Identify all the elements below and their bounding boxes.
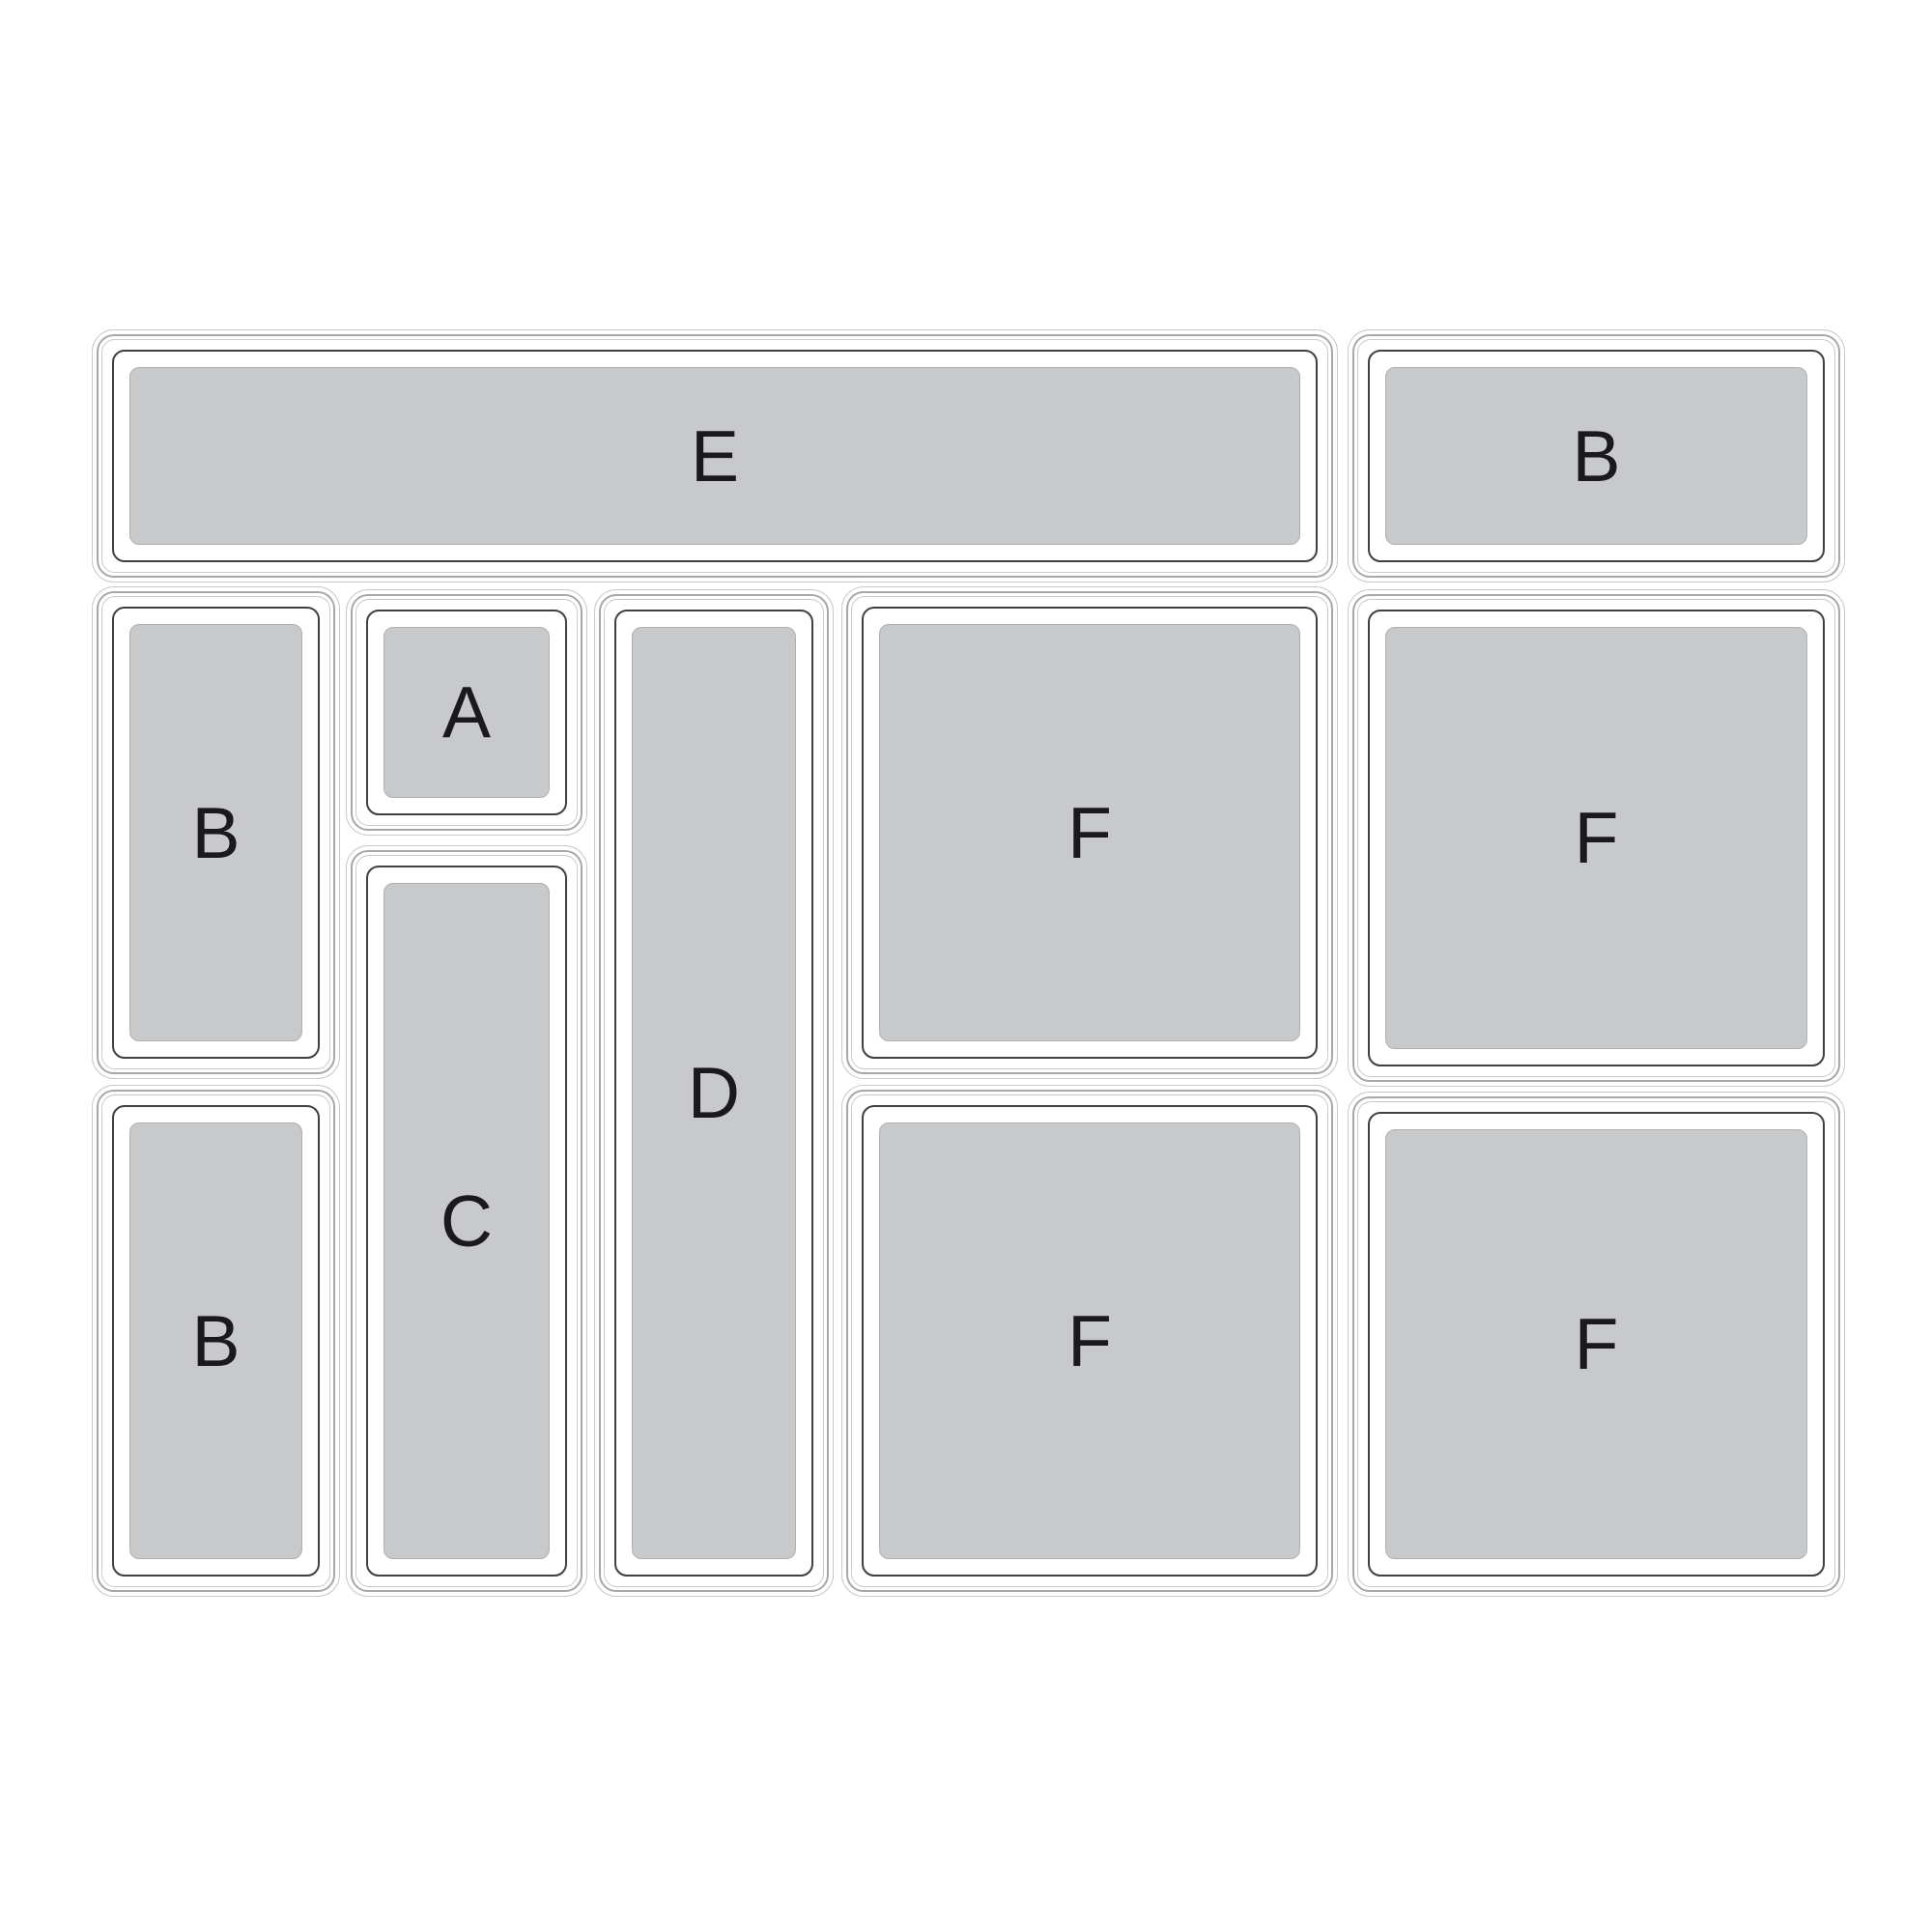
compartment-label: F <box>1575 1308 1619 1380</box>
drawer-organizer-diagram: E B B B A C <box>0 0 1932 1932</box>
compartment-b-left-upper: B <box>97 591 335 1074</box>
compartment-b-top-right: B <box>1352 334 1840 578</box>
tray-floor: C <box>384 883 550 1559</box>
compartment-label: B <box>1572 420 1620 493</box>
tray-floor: B <box>129 1122 302 1559</box>
tray-inner-wall: B <box>112 1105 320 1577</box>
tray-inner-wall: E <box>112 350 1318 562</box>
compartment-f-middle-upper: F <box>846 591 1333 1074</box>
compartment-label: A <box>442 676 491 749</box>
compartment-d-tall: D <box>599 594 829 1592</box>
tray-floor: F <box>879 624 1300 1041</box>
compartment-label: F <box>1575 802 1619 874</box>
tray-inner-wall: A <box>366 610 567 815</box>
tray-inner-wall: C <box>366 866 567 1577</box>
tray-floor: F <box>1385 627 1807 1049</box>
compartment-f-right-lower: F <box>1352 1096 1840 1592</box>
compartment-label: F <box>1067 1305 1112 1378</box>
compartment-f-right-upper: F <box>1352 594 1840 1082</box>
tray-floor: F <box>1385 1129 1807 1559</box>
tray-inner-wall: F <box>1368 1112 1825 1577</box>
compartment-b-left-lower: B <box>97 1090 335 1592</box>
tray-inner-wall: F <box>862 607 1318 1059</box>
compartment-label: D <box>688 1057 740 1129</box>
compartment-label: E <box>691 420 739 493</box>
tray-inner-wall: B <box>1368 350 1825 562</box>
tray-inner-wall: B <box>112 607 320 1059</box>
compartment-label: B <box>191 797 240 869</box>
compartment-c-tall: C <box>351 850 582 1592</box>
compartment-a-small: A <box>351 594 582 831</box>
compartment-f-middle-lower: F <box>846 1090 1333 1592</box>
tray-inner-wall: D <box>614 610 813 1577</box>
tray-floor: B <box>1385 367 1807 545</box>
tray-floor: A <box>384 627 550 798</box>
tray-floor: B <box>129 624 302 1041</box>
compartment-e-top-wide: E <box>97 334 1333 578</box>
tray-inner-wall: F <box>862 1105 1318 1577</box>
compartment-label: C <box>440 1185 493 1258</box>
compartment-label: B <box>191 1305 240 1378</box>
tray-inner-wall: F <box>1368 610 1825 1066</box>
tray-floor: D <box>632 627 796 1559</box>
tray-floor: F <box>879 1122 1300 1559</box>
compartment-label: F <box>1067 797 1112 869</box>
tray-floor: E <box>129 367 1300 545</box>
